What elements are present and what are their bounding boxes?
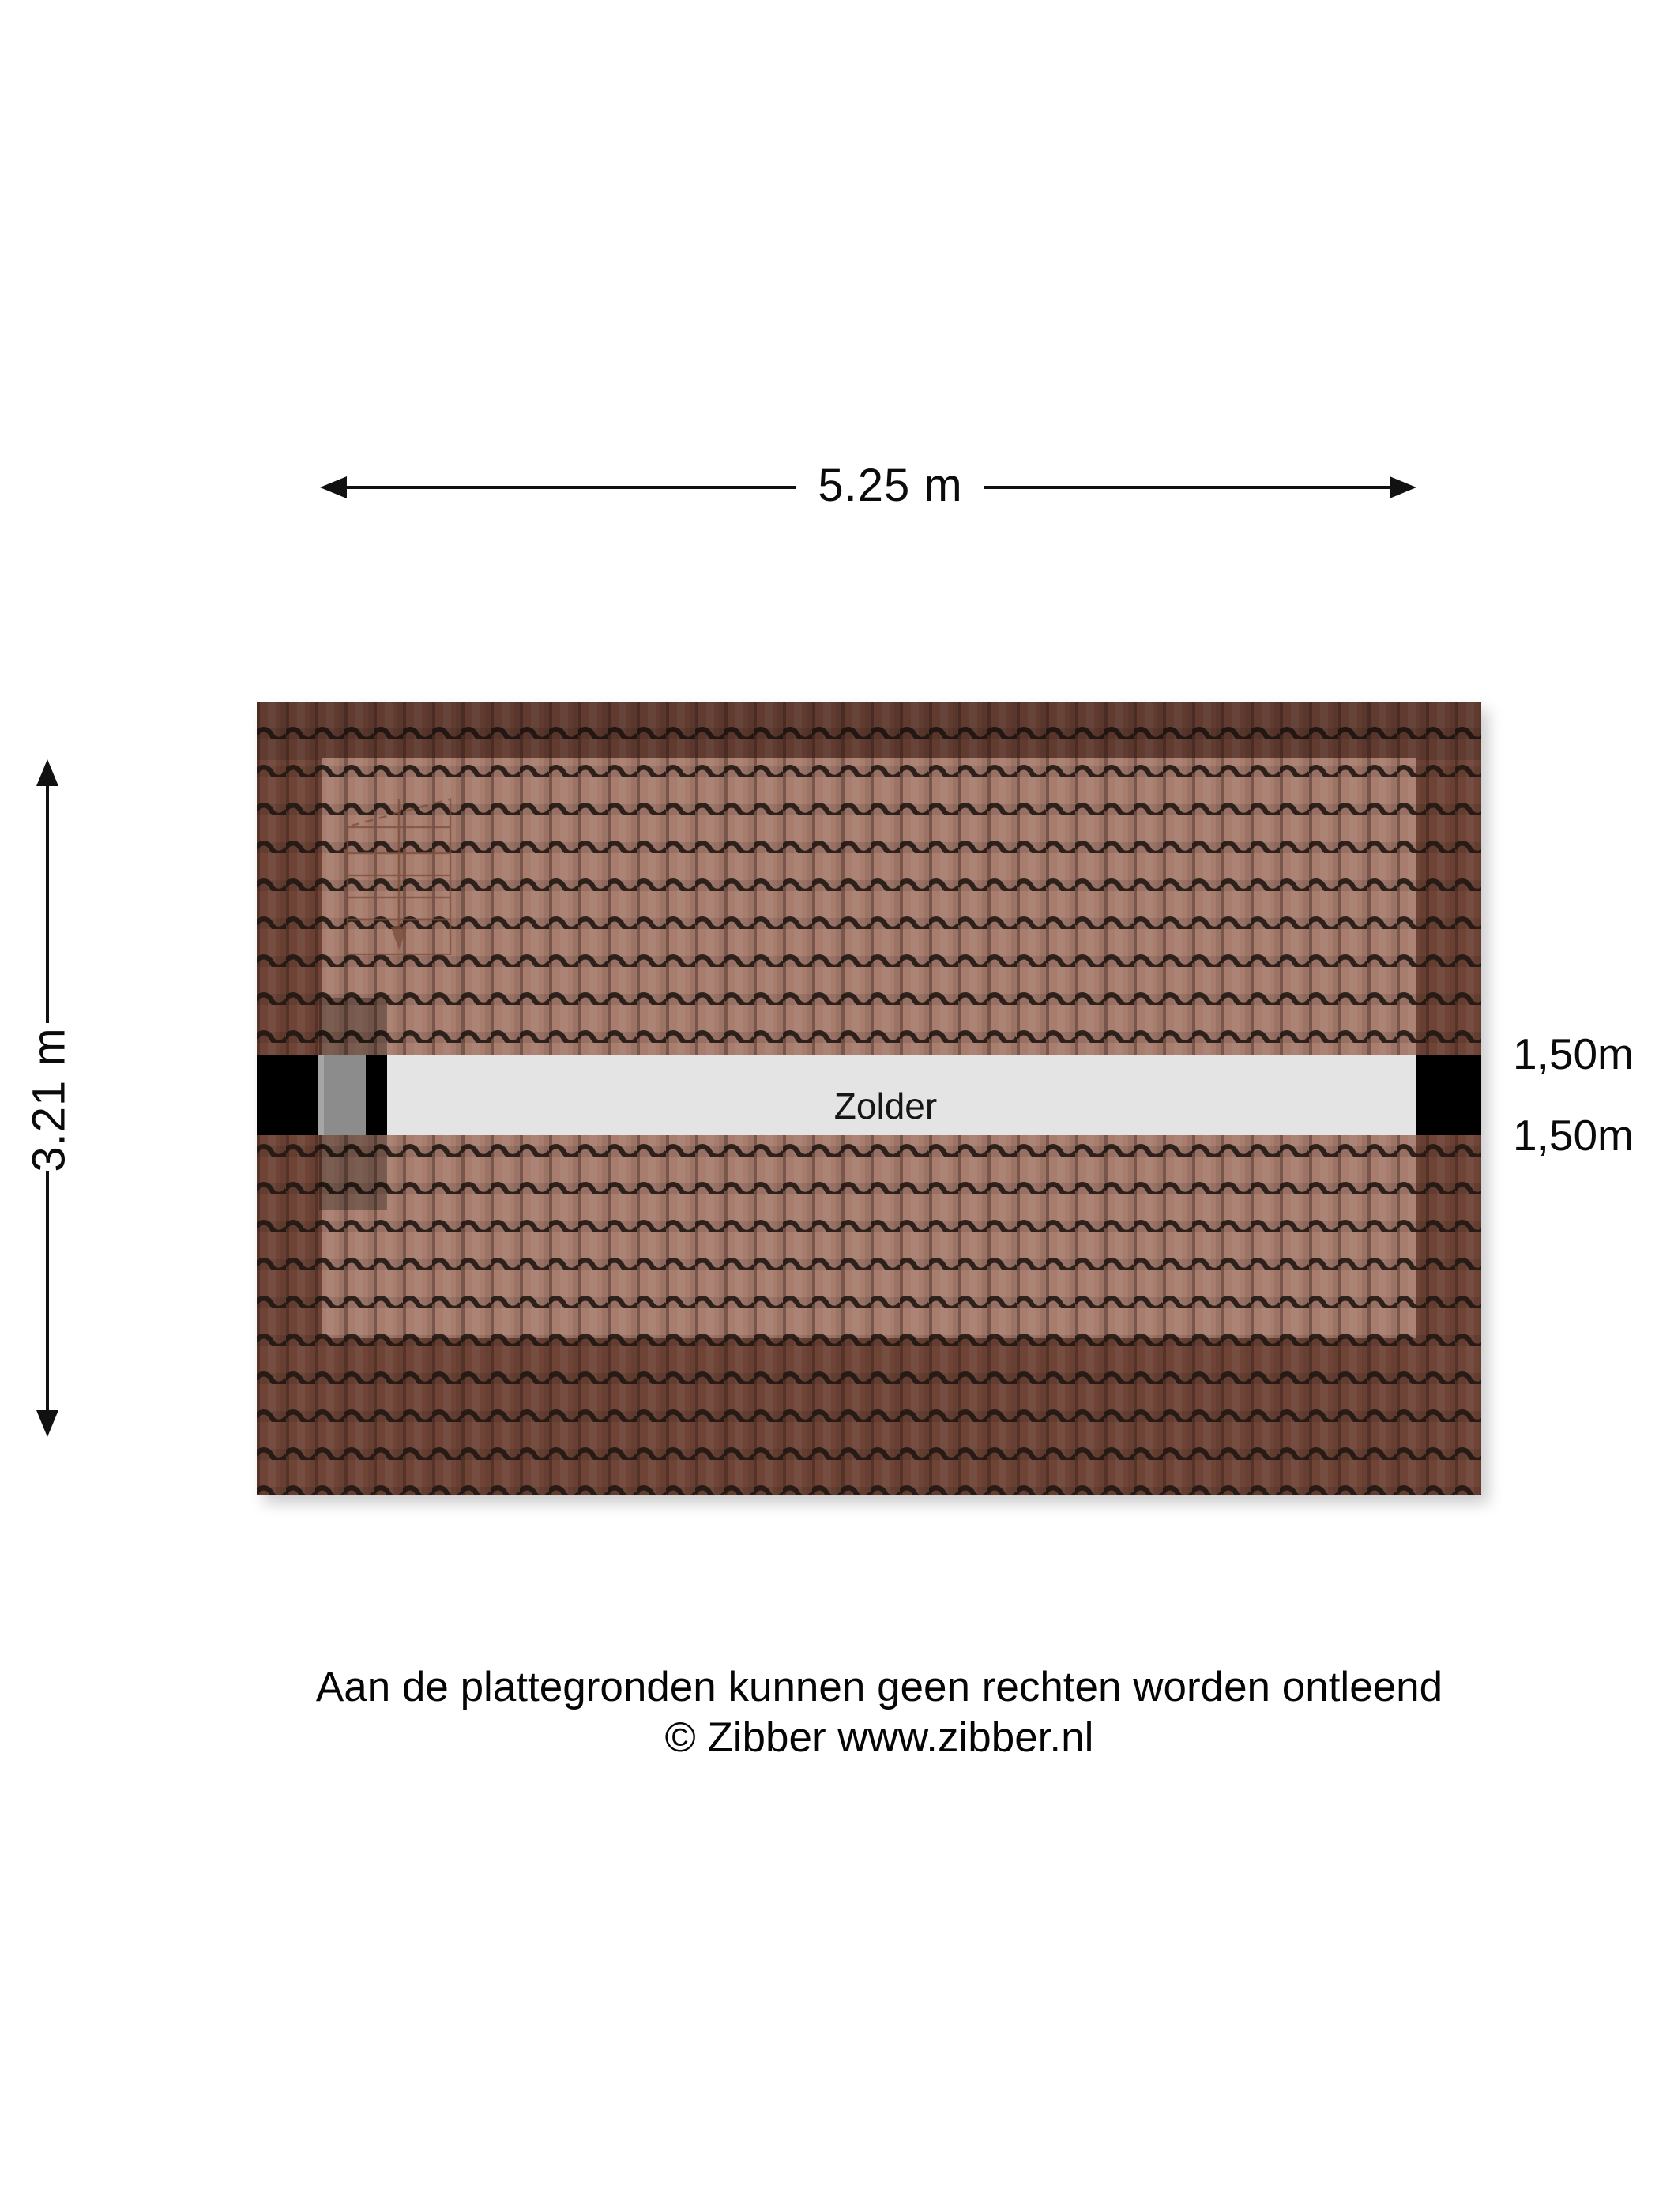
height-dimension-label: 3.21 m bbox=[23, 1027, 76, 1172]
arrowhead-right-icon bbox=[1390, 476, 1416, 498]
footer-copyright: © Zibber www.zibber.nl bbox=[316, 1713, 1443, 1763]
knee-wall-dimension-top: 1,50m bbox=[1513, 1029, 1634, 1079]
footer-disclaimer: Aan de plattegronden kunnen geen rechten… bbox=[316, 1662, 1443, 1713]
corridor-wall-left bbox=[366, 1055, 387, 1135]
roof-plan-drawing: Zolder bbox=[257, 702, 1481, 1495]
knee-wall-dimension-bottom: 1,50m bbox=[1513, 1110, 1634, 1161]
width-dimension-label: 5.25 m bbox=[818, 459, 962, 512]
corridor-end-right bbox=[1416, 1055, 1481, 1135]
room-label: Zolder bbox=[834, 1085, 937, 1127]
footer: Aan de plattegronden kunnen geen rechten… bbox=[316, 1662, 1443, 1763]
floorplan-canvas: Zolder bbox=[257, 702, 1481, 1495]
arrowhead-left-icon bbox=[320, 476, 347, 498]
corridor-window bbox=[318, 1055, 366, 1135]
attic-corridor: Zolder bbox=[257, 1055, 1481, 1135]
arrowhead-up-icon bbox=[36, 759, 58, 786]
arrowhead-down-icon bbox=[36, 1410, 58, 1437]
floorplan-page: { "dimensions": { "top_width_label": "5.… bbox=[0, 0, 1659, 2212]
roof-inner-tiles bbox=[322, 758, 1416, 1338]
corridor-end-left bbox=[257, 1055, 318, 1135]
